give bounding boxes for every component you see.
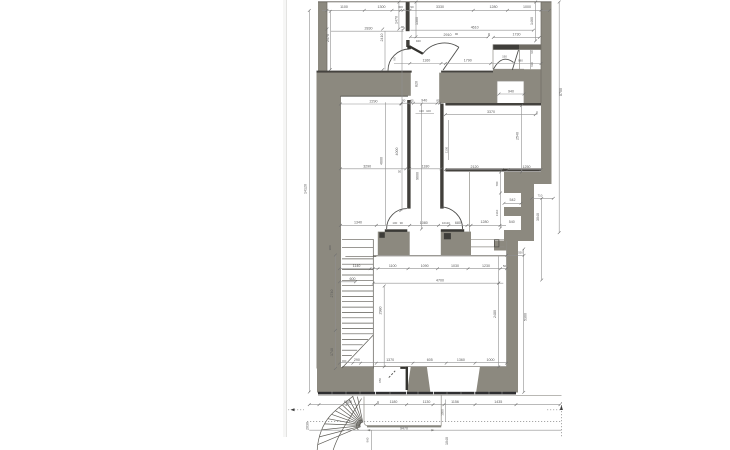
svg-text:3370: 3370 xyxy=(487,110,495,114)
svg-text:540: 540 xyxy=(509,220,515,224)
svg-text:1040: 1040 xyxy=(445,437,449,445)
svg-text:980: 980 xyxy=(518,59,523,63)
svg-text:1230: 1230 xyxy=(482,264,490,268)
svg-text:605: 605 xyxy=(427,358,433,362)
svg-text:1050: 1050 xyxy=(440,409,444,416)
svg-text:1280: 1280 xyxy=(490,5,498,9)
svg-text:90: 90 xyxy=(455,32,459,36)
svg-text:940: 940 xyxy=(508,90,514,94)
svg-text:130: 130 xyxy=(419,109,424,113)
svg-text:960: 960 xyxy=(365,437,369,442)
svg-text:1740: 1740 xyxy=(330,348,334,356)
svg-text:1180: 1180 xyxy=(390,400,398,404)
svg-text:542: 542 xyxy=(510,198,516,202)
svg-text:190: 190 xyxy=(502,55,507,59)
svg-text:300: 300 xyxy=(328,245,332,250)
svg-text:100: 100 xyxy=(392,221,397,225)
svg-text:1470: 1470 xyxy=(395,16,399,24)
svg-text:1370: 1370 xyxy=(386,358,394,362)
svg-text:1000: 1000 xyxy=(523,5,531,9)
svg-text:9470: 9470 xyxy=(400,427,408,431)
svg-text:90: 90 xyxy=(393,57,397,61)
svg-text:50: 50 xyxy=(503,264,507,268)
svg-text:950: 950 xyxy=(378,378,382,383)
svg-text:5360: 5360 xyxy=(523,313,527,321)
svg-text:3290: 3290 xyxy=(363,164,371,168)
svg-text:100: 100 xyxy=(426,109,431,113)
svg-text:2910: 2910 xyxy=(444,33,452,37)
svg-text:1080: 1080 xyxy=(420,221,428,225)
svg-text:3040: 3040 xyxy=(536,213,540,221)
svg-text:2470: 2470 xyxy=(326,34,330,42)
svg-text:680: 680 xyxy=(455,221,461,225)
svg-text:1435: 1435 xyxy=(494,400,502,404)
svg-text:2030: 2030 xyxy=(306,422,310,430)
svg-text:1156: 1156 xyxy=(451,400,459,404)
svg-text:2290: 2290 xyxy=(370,100,378,104)
svg-text:4600: 4600 xyxy=(380,157,384,165)
svg-text:1160: 1160 xyxy=(423,59,431,63)
svg-text:1790: 1790 xyxy=(464,59,472,63)
svg-text:610: 610 xyxy=(530,62,534,67)
svg-text:9600: 9600 xyxy=(416,172,420,180)
svg-text:90: 90 xyxy=(487,33,491,37)
svg-text:290: 290 xyxy=(354,358,360,362)
svg-text:1250: 1250 xyxy=(523,165,531,169)
svg-text:700: 700 xyxy=(495,181,499,186)
svg-text:1100: 1100 xyxy=(389,264,397,268)
svg-text:1140: 1140 xyxy=(353,264,361,268)
svg-text:1180: 1180 xyxy=(422,164,430,168)
svg-text:90: 90 xyxy=(400,221,404,225)
svg-text:1100: 1100 xyxy=(340,5,348,9)
svg-text:600: 600 xyxy=(350,277,356,281)
svg-text:14120: 14120 xyxy=(304,184,308,194)
svg-text:1030: 1030 xyxy=(451,264,459,268)
svg-text:2540: 2540 xyxy=(516,132,520,140)
svg-text:1090: 1090 xyxy=(421,264,429,268)
svg-text:1300: 1300 xyxy=(415,17,419,25)
svg-text:120: 120 xyxy=(445,221,450,225)
svg-text:2980: 2980 xyxy=(379,307,383,315)
svg-text:1000: 1000 xyxy=(487,358,495,362)
svg-text:1310: 1310 xyxy=(495,209,499,216)
svg-text:2740: 2740 xyxy=(330,290,334,298)
svg-text:1460: 1460 xyxy=(530,17,534,25)
svg-text:2480: 2480 xyxy=(493,310,497,318)
svg-text:2120: 2120 xyxy=(471,165,479,169)
svg-text:90: 90 xyxy=(530,50,534,54)
svg-text:1300: 1300 xyxy=(378,5,386,9)
svg-text:1340: 1340 xyxy=(354,221,362,225)
svg-text:1360: 1360 xyxy=(457,358,465,362)
svg-text:4700: 4700 xyxy=(436,279,444,283)
svg-text:50: 50 xyxy=(398,170,402,174)
svg-text:4610: 4610 xyxy=(471,25,479,29)
svg-text:300: 300 xyxy=(398,5,403,9)
svg-text:1730: 1730 xyxy=(513,33,521,37)
svg-text:550: 550 xyxy=(518,250,523,254)
svg-text:90: 90 xyxy=(410,5,414,9)
svg-text:1130: 1130 xyxy=(445,147,449,154)
svg-text:2830: 2830 xyxy=(365,26,373,30)
svg-text:3330: 3330 xyxy=(436,5,444,9)
svg-text:4000: 4000 xyxy=(395,148,399,156)
svg-text:1130: 1130 xyxy=(423,400,431,404)
svg-text:710: 710 xyxy=(538,194,543,198)
svg-text:820: 820 xyxy=(415,81,419,87)
svg-text:1280: 1280 xyxy=(481,220,489,224)
svg-text:8700: 8700 xyxy=(559,88,563,96)
svg-text:940: 940 xyxy=(416,39,421,43)
svg-text:940: 940 xyxy=(421,99,427,103)
svg-text:2410: 2410 xyxy=(380,34,384,42)
